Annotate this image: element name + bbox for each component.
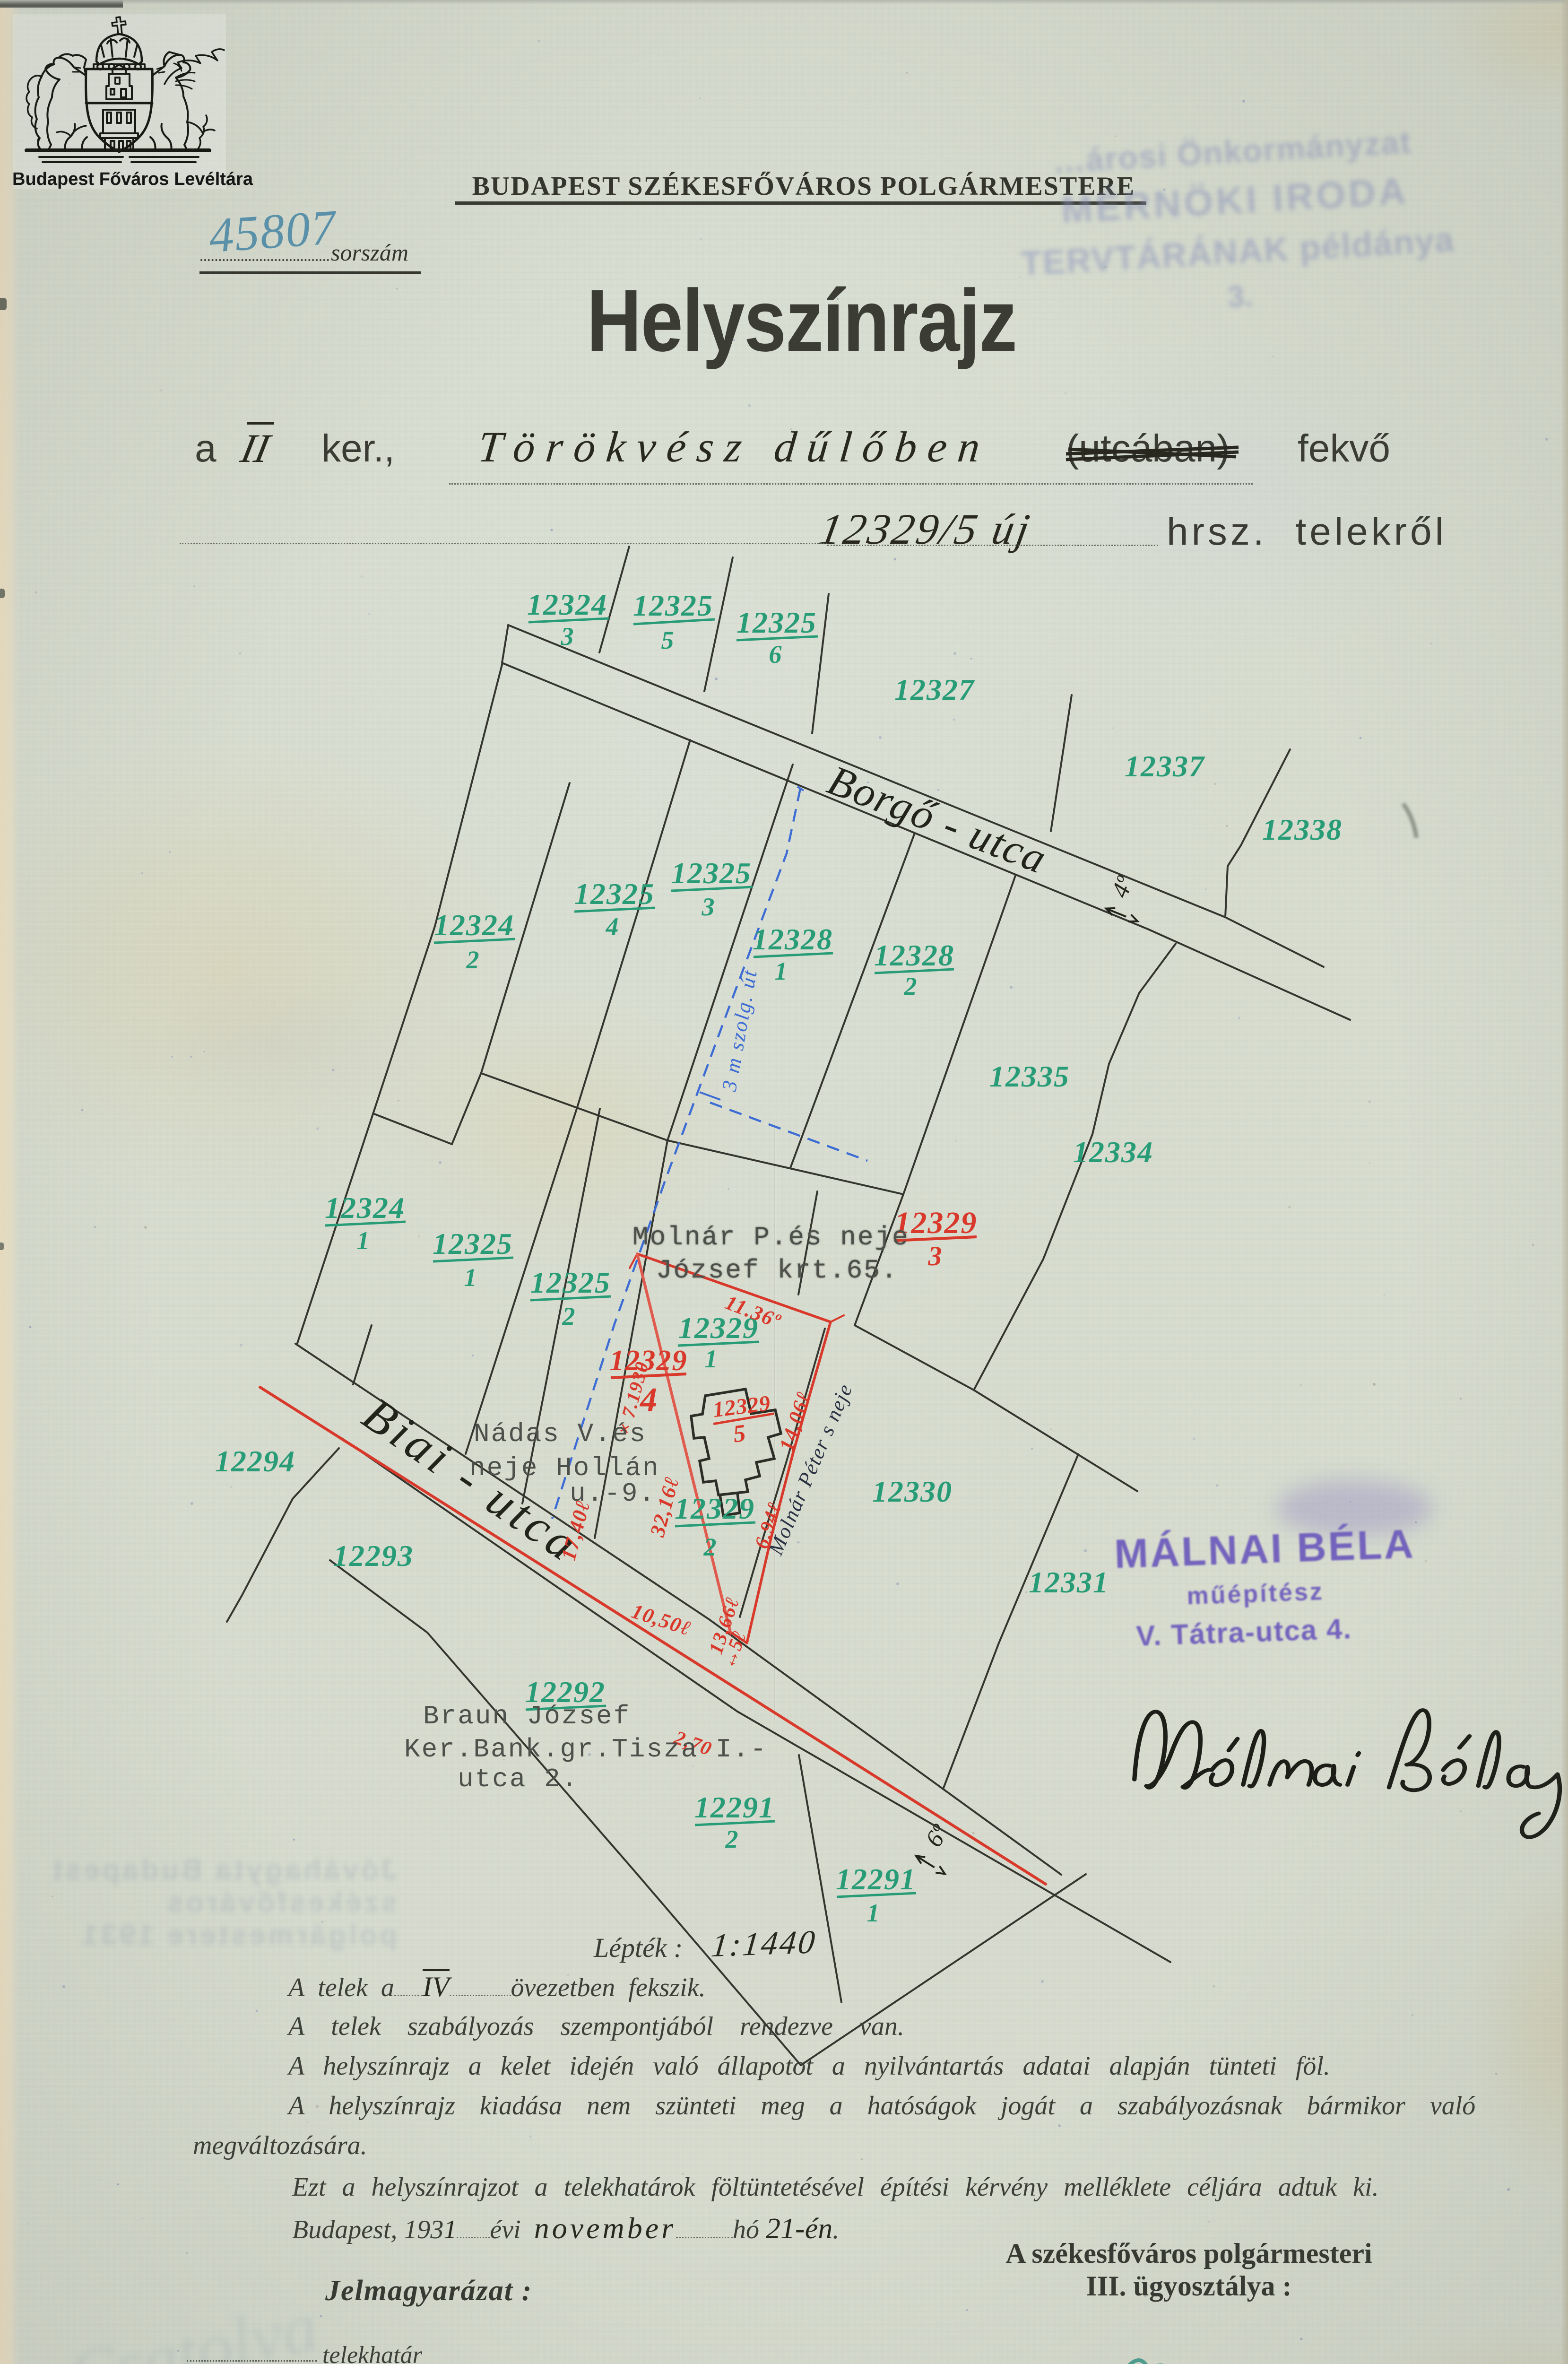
svg-text:u.-9.: u.-9. <box>570 1478 656 1509</box>
svg-text:12325: 12325 <box>671 856 752 890</box>
svg-text:12338: 12338 <box>1262 813 1343 846</box>
svg-text:12337: 12337 <box>1125 749 1205 783</box>
svg-text:Molnár P.és neje: Molnár P.és neje <box>632 1222 910 1252</box>
svg-text:12291: 12291 <box>694 1790 775 1824</box>
svg-text:12331: 12331 <box>1029 1565 1109 1599</box>
svg-text:12294: 12294 <box>215 1444 295 1478</box>
svg-text:3: 3 <box>928 1241 942 1271</box>
svg-text:12329: 12329 <box>711 1391 772 1423</box>
svg-text:12325: 12325 <box>433 1227 513 1260</box>
svg-text:1: 1 <box>357 1226 370 1255</box>
svg-text:3 m szolg. út: 3 m szolg. út <box>717 967 762 1094</box>
svg-text:2: 2 <box>904 972 917 1000</box>
svg-text:12329: 12329 <box>675 1492 755 1525</box>
svg-text:utca 2.: utca 2. <box>458 1764 579 1794</box>
svg-text:12334: 12334 <box>1073 1135 1153 1169</box>
svg-text:4: 4 <box>606 913 619 941</box>
svg-text:József krt.65.: József krt.65. <box>656 1255 898 1286</box>
svg-text:10,50ℓ: 10,50ℓ <box>629 1599 694 1641</box>
svg-text:12324: 12324 <box>434 908 514 942</box>
svg-text:3: 3 <box>702 893 715 921</box>
svg-text:2: 2 <box>703 1533 717 1561</box>
svg-text:Ker.Bank.gr.Tisza I.-: Ker.Bank.gr.Tisza I.- <box>404 1734 768 1764</box>
svg-text:1: 1 <box>705 1345 718 1373</box>
svg-text:12325: 12325 <box>633 589 713 622</box>
svg-text:Braun József: Braun József <box>423 1701 631 1731</box>
svg-text:12325: 12325 <box>530 1266 611 1299</box>
svg-text:12335: 12335 <box>989 1060 1070 1093</box>
svg-text:2: 2 <box>562 1302 575 1330</box>
svg-text:12324: 12324 <box>325 1191 405 1225</box>
svg-text:2: 2 <box>466 946 479 974</box>
svg-text:12325: 12325 <box>736 606 817 639</box>
svg-text:12324: 12324 <box>527 588 607 621</box>
svg-text:12293: 12293 <box>333 1539 414 1573</box>
svg-text:12291: 12291 <box>836 1862 916 1896</box>
svg-text:12328: 12328 <box>874 939 954 972</box>
svg-text:6: 6 <box>769 640 782 669</box>
svg-text:12328: 12328 <box>753 922 833 956</box>
svg-text:1: 1 <box>775 957 788 985</box>
svg-text:12325: 12325 <box>574 877 655 911</box>
svg-text:Nádas V.és: Nádas V.és <box>474 1419 647 1449</box>
svg-text:12330: 12330 <box>872 1475 953 1508</box>
svg-text:1: 1 <box>464 1263 477 1292</box>
svg-text:2: 2 <box>725 1825 738 1853</box>
svg-text:12327: 12327 <box>894 673 975 706</box>
svg-text:1: 1 <box>867 1899 880 1927</box>
svg-text:5: 5 <box>661 626 674 654</box>
svg-text:Borgő - utca: Borgő - utca <box>822 756 1054 883</box>
svg-text:5: 5 <box>732 1420 747 1448</box>
svg-text:3: 3 <box>561 622 574 651</box>
